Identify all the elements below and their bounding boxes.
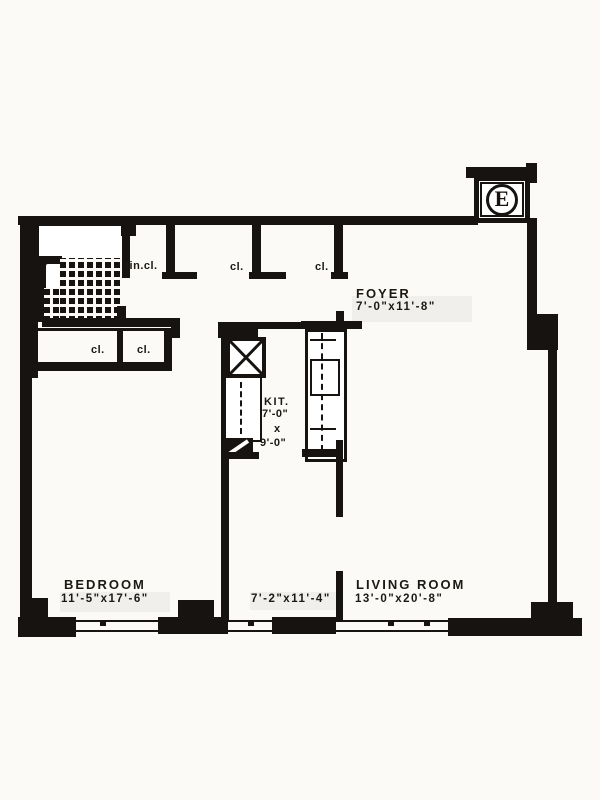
counter-centerline (240, 382, 242, 434)
window-mullion (388, 621, 394, 626)
wall-bottom-right-step (531, 602, 573, 618)
wall-door-jamb (171, 318, 180, 338)
wall-right-lower (548, 350, 557, 622)
wall-right-upper (527, 218, 537, 316)
window-mullion (424, 621, 430, 626)
wall-lincl-right (166, 222, 175, 275)
room-dims-kitchen-w: 7'-0" (262, 409, 288, 420)
closet-label-hall-1: cl. (230, 262, 244, 273)
wall-bottom-segment (272, 617, 336, 634)
wall-hall-bottom (42, 318, 180, 327)
room-label-living: LIVING ROOM (356, 578, 465, 591)
wall-bottom-step (178, 600, 214, 617)
room-dims-kitchen-x: x (274, 424, 281, 435)
wall-bath-right-stub (117, 306, 126, 320)
closet-label-bedroom-1: cl. (91, 345, 105, 356)
wall-dining-living-upper (336, 440, 343, 517)
wall-bottom-right-corner (448, 618, 582, 636)
closet-sill (249, 272, 286, 279)
closet-label-bedroom-2: cl. (137, 345, 151, 356)
wall-kitchen-bottom (221, 452, 259, 459)
closet-label-hall-2: cl. (315, 262, 329, 273)
room-label-bedroom: BEDROOM (64, 578, 146, 591)
wall-foyer-left-upper (334, 222, 343, 273)
wall-bottom-segment (158, 617, 228, 634)
tile-floor (44, 288, 60, 322)
wall-pillar-right (527, 314, 558, 350)
wall-closet-divider (117, 330, 123, 366)
room-dims-foyer: 7'-0"x11'-8" (356, 302, 436, 314)
room-dims-dining: 7'-2"x11'-4" (251, 594, 331, 606)
closet-label-linen: lin.cl. (126, 261, 158, 272)
cabinet-divider (310, 339, 336, 341)
wall-closet-top (34, 328, 172, 331)
window-bedroom (76, 620, 158, 632)
room-dims-bedroom: 11'-5"x17'-6" (61, 594, 149, 606)
window-mullion (100, 621, 106, 626)
room-dims-living: 13'-0"x20'-8" (355, 594, 443, 606)
cabinet-centerline (321, 333, 323, 451)
kitchen-sink-icon (310, 359, 340, 396)
elevator-circle: E (486, 184, 518, 216)
wall-bedroom-top (28, 362, 172, 371)
shaft-icon (226, 337, 266, 378)
elevator-marker: E (474, 176, 530, 223)
floor-plan-sheet: E lin.cl. cl. cl. cl. cl. FOYER 7'-0"x11… (0, 0, 600, 800)
room-label-kitchen: KIT. (264, 397, 290, 408)
elevator-marker-frame: E (480, 182, 524, 217)
window-mullion (248, 621, 254, 626)
wall-bottom-left-corner (18, 617, 76, 637)
room-label-foyer: FOYER (356, 287, 411, 300)
cabinet-divider (310, 428, 336, 430)
tile-floor (60, 258, 122, 322)
kitchen-counter (224, 376, 262, 442)
room-dims-kitchen-h: 9'-0" (260, 438, 286, 449)
wall-closet-divider (252, 222, 261, 273)
wall-kitchen-unit-top (301, 321, 362, 329)
closet-sill (162, 272, 197, 279)
closet-sill (331, 272, 348, 279)
elevator-letter: E (495, 188, 510, 210)
